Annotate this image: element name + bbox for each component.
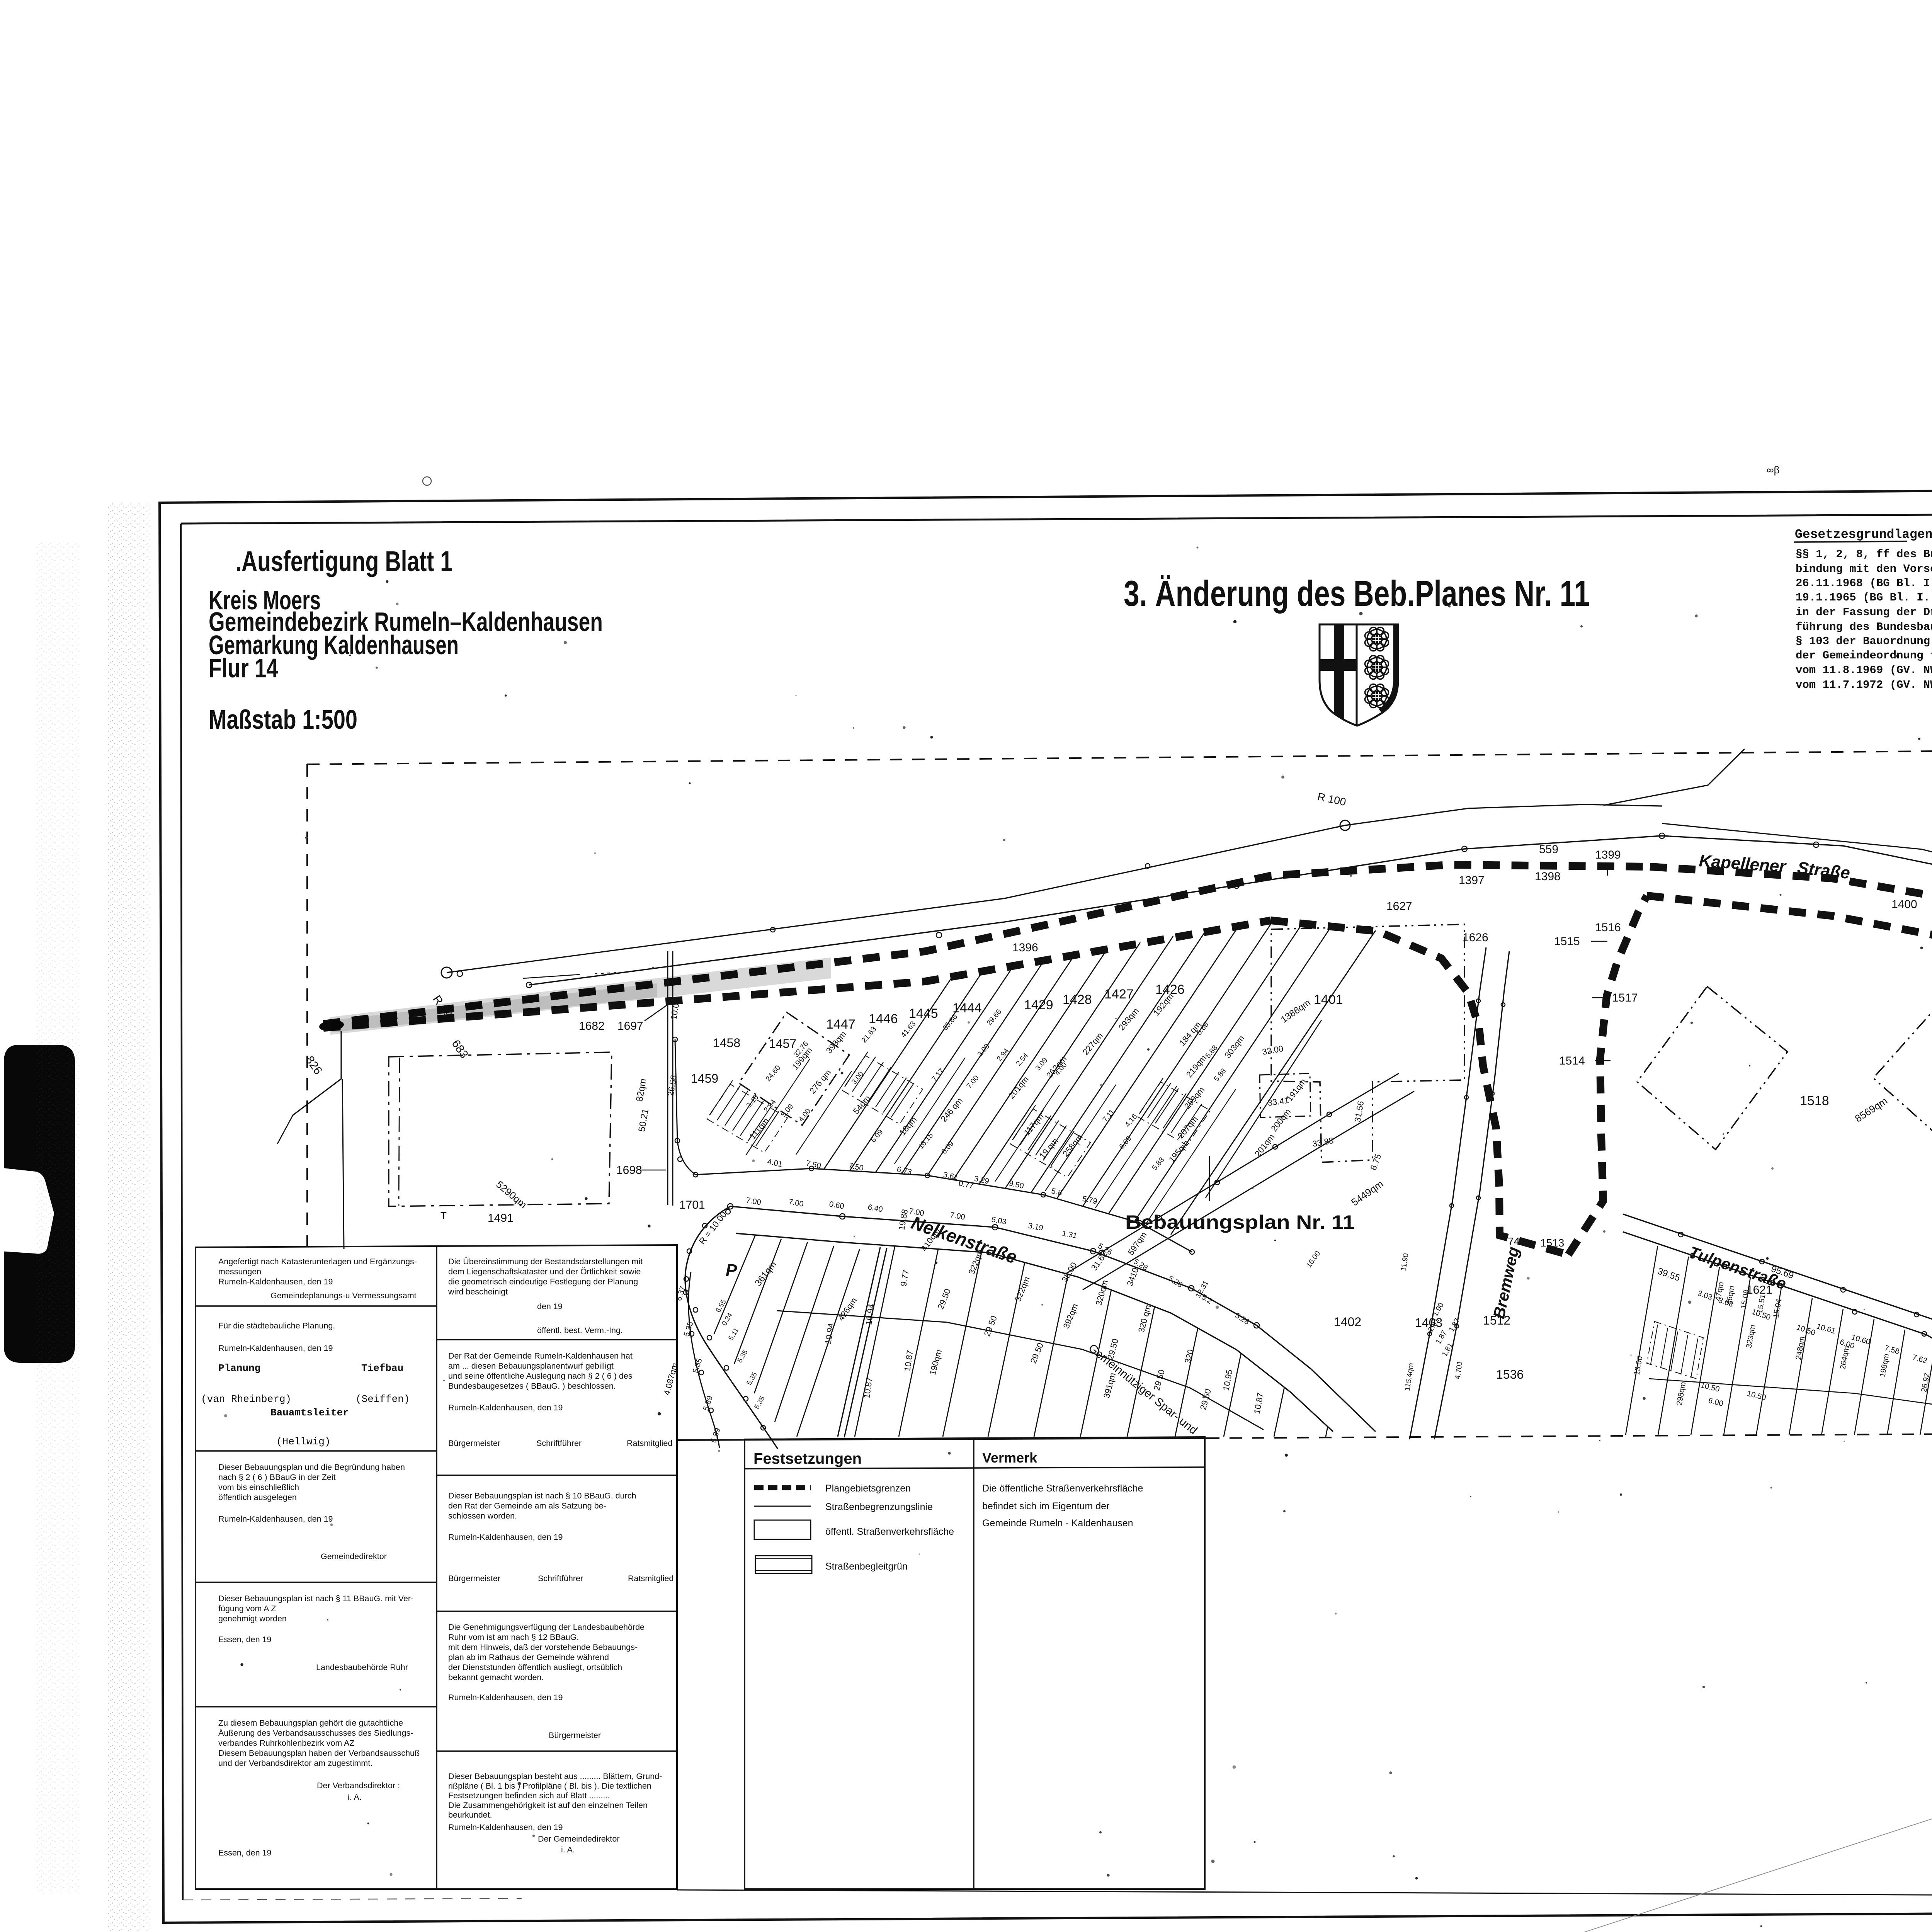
svg-text:Plangebietsgrenzen: Plangebietsgrenzen [825,1483,911,1494]
svg-text:1457: 1457 [769,1037,796,1051]
svg-text:bekannt gemacht worden.: bekannt gemacht worden. [448,1673,544,1682]
svg-text:vom 11.7.1972 (GV. NW. S. 218): vom 11.7.1972 (GV. NW. S. 218) [1796,679,1932,691]
svg-text:genehmigt worden: genehmigt worden [218,1614,287,1623]
svg-text:Zu diesem Bebauungsplan gehört: Zu diesem Bebauungsplan gehört die gutac… [218,1718,403,1728]
svg-text:Dieser Bebauungsplan ist nach: Dieser Bebauungsplan ist nach § 10 BBauG… [448,1491,636,1500]
svg-text:Bundesbaugesetzes ( BBauG. ) b: Bundesbaugesetzes ( BBauG. ) beschlossen… [448,1381,616,1391]
svg-text:(Seiffen): (Seiffen) [355,1393,410,1405]
svg-text:Diesem Bebauungsplan haben der: Diesem Bebauungsplan haben der Verbandsa… [218,1748,420,1758]
svg-text:Vermerk: Vermerk [982,1450,1037,1466]
svg-text:dem Liegenschaftskataster und: dem Liegenschaftskataster und der Örtlic… [448,1267,641,1276]
svg-text:Maßstab 1:500: Maßstab 1:500 [209,704,357,735]
svg-text:Rumeln-Kaldenhausen, den: Rumeln-Kaldenhausen, den 19 [218,1514,333,1524]
svg-text:mit dem Hinweis, daß der vorst: mit dem Hinweis, daß der vorstehende Beb… [448,1643,638,1652]
svg-text:und seine öffentliche Auslegun: und seine öffentliche Auslegung nach § 2… [448,1371,633,1381]
svg-text:Rumeln-Kaldenhausen, den: Rumeln-Kaldenhausen, den 19 [448,1693,563,1702]
svg-text:1401: 1401 [1314,992,1343,1007]
svg-text:1397: 1397 [1459,874,1485,887]
svg-text:1444: 1444 [952,1001,982,1015]
svg-text:schlossen worden.: schlossen worden. [448,1511,517,1520]
svg-text:den Rat der Gemeinde am: den Rat der Gemeinde am als Satzung be- [448,1501,606,1510]
svg-text:1398: 1398 [1535,870,1561,883]
svg-text:Tiefbau: Tiefbau [361,1362,403,1374]
svg-text:Festsetzungen: Festsetzungen [753,1450,862,1467]
svg-text:Die Genehmigungsverfügung der: Die Genehmigungsverfügung der Landesbaub… [448,1622,645,1632]
svg-text:beurkundet.: beurkundet. [448,1810,492,1820]
svg-text:Essen, den 19: Essen, den 19 [218,1848,271,1857]
svg-text:der Dienststunden öffentlich a: der Dienststunden öffentlich ausliegt, o… [448,1663,622,1672]
svg-text:1429: 1429 [1024,998,1053,1012]
svg-text:Ratsmitglied: Ratsmitglied [628,1574,673,1583]
svg-text:öffentl. Straßenverkehrsfläche: öffentl. Straßenverkehrsfläche [825,1526,954,1537]
svg-text:verbandes Ruhrkohlenbezirk vom: verbandes Ruhrkohlenbezirk vom AZ [218,1738,355,1748]
svg-text:plan ab im Rath: plan ab im Rathaus der Gemeinde während [448,1653,609,1662]
svg-text:Der Verbandsdirektor :: Der Verbandsdirektor : [317,1781,400,1790]
svg-text:§ 103 der Bauordnung NW. vom 2: § 103 der Bauordnung NW. vom 27.1.1970 (… [1796,635,1932,648]
svg-text:26.11.1968 (BG Bl. I. 1968 S.: 26.11.1968 (BG Bl. I. 1968 S. 1237/1969 … [1796,577,1932,590]
svg-text:öffentl. best. Verm.-Ing.: öffentl. best. Verm.-Ing. [537,1326,623,1335]
svg-text:1697: 1697 [617,1020,643,1032]
svg-text:Rumeln-Kaldenhausen, den: Rumeln-Kaldenhausen, den 19 [448,1403,563,1412]
svg-text:1627: 1627 [1386,900,1412,913]
svg-text:Flur 14: Flur 14 [209,653,278,683]
svg-text:(Hellwig): (Hellwig) [276,1436,330,1447]
svg-text:1536: 1536 [1496,1367,1524,1381]
svg-text:Rumeln-Kaldenhausen, den: Rumeln-Kaldenhausen, den 19 [448,1823,563,1832]
svg-text:Planung: Planung [218,1362,260,1374]
svg-text:1698: 1698 [616,1164,642,1177]
svg-text:Gemeindeplanungs-u Vermessung: Gemeindeplanungs-u Vermessungsamt [270,1291,417,1300]
svg-text:führung des Bundesbaugesetzes: führung des Bundesbaugesetzes vom 21.4.1… [1796,621,1932,633]
svg-text:1428: 1428 [1063,992,1092,1007]
svg-text:nach § 2 ( 6 ) BBauG in der Z: nach § 2 ( 6 ) BBauG in der Zeit [218,1473,336,1482]
svg-text:3. Änderung des Beb.Planes Nr.: 3. Änderung des Beb.Planes Nr. 11 [1124,573,1590,614]
svg-text:Straßenbegrenzungslinie: Straßenbegrenzungslinie [825,1502,933,1512]
svg-text:Bürgermeister: Bürgermeister [549,1731,601,1740]
svg-text:Ratsmitglied: Ratsmitglied [627,1439,672,1448]
svg-text:1515: 1515 [1554,935,1580,948]
svg-text:∞β: ∞β [1767,464,1780,476]
svg-text:Landesbaubehörde Ruhr: Landesbaubehörde Ruhr [316,1663,408,1672]
svg-text:Die Zusammengehörigkeit ist au: Die Zusammengehörigkeit ist auf den einz… [448,1801,648,1810]
svg-text:Dieser Bebauungsplan und die B: Dieser Bebauungsplan und die Begründung … [218,1463,405,1472]
svg-text:Gemeindedirektor: Gemeindedirektor [321,1552,387,1561]
svg-text:in der Fassung der Dritten Ver: in der Fassung der Dritten Verordnung zu… [1796,605,1932,619]
svg-text:vom bis eins: vom bis einschließlich [218,1483,299,1492]
svg-text:1459: 1459 [691,1071,718,1085]
svg-text:1446: 1446 [869,1012,898,1026]
svg-text:fügung vom A Z: fügung vom A Z [218,1604,276,1613]
svg-text:die geometrisch eindeutige Fes: die geometrisch eindeutige Festlegung de… [448,1277,638,1286]
svg-text:Der Gemeindedirektor: Der Gemeindedirektor [538,1834,620,1844]
svg-text:Bürgermeister: Bürgermeister [448,1574,500,1583]
svg-text:1513: 1513 [1540,1237,1564,1249]
svg-text:1514: 1514 [1559,1054,1585,1067]
svg-text:vom 11.8.1969 (GV. NW. S. 656): vom 11.8.1969 (GV. NW. S. 656) [1796,664,1932,677]
svg-text:i. A.: i. A. [561,1845,575,1854]
svg-text:1626: 1626 [1463,931,1488,944]
svg-text:1396: 1396 [1012,941,1038,954]
svg-text:und der Verbandsdirektor am: und der Verbandsdirektor am zugestimmt. [218,1759,372,1768]
svg-text:Bebauungsplan Nr. 11: Bebauungsplan Nr. 11 [1125,1211,1355,1233]
svg-text:i. A.: i. A. [348,1793,362,1802]
svg-text:Für die städtebauliche Planung: Für die städtebauliche Planung. [218,1321,335,1330]
svg-text:messungen: messungen [218,1267,261,1276]
svg-text:Dieser Bebauungsplan ist nach: Dieser Bebauungsplan ist nach § 11 BBauG… [218,1594,413,1603]
svg-text:Schriftführer: Schriftführer [536,1439,582,1448]
svg-text:Dieser Bebauungsplan besteht a: Dieser Bebauungsplan besteht aus .......… [448,1772,662,1781]
svg-text:1517: 1517 [1612,992,1638,1004]
svg-text:1400: 1400 [1891,898,1917,911]
svg-text:1491: 1491 [488,1212,514,1225]
svg-text:1399: 1399 [1595,849,1621,861]
svg-text:1701: 1701 [679,1199,705,1211]
svg-text:Rumeln-Kaldenhausen, den: Rumeln-Kaldenhausen, den 19 [218,1277,333,1286]
svg-text:Bürgermeister: Bürgermeister [448,1439,500,1448]
svg-text:744: 744 [1508,1235,1526,1247]
svg-text:befindet sich im Eigentum der: befindet sich im Eigentum der [982,1501,1109,1512]
svg-text:Essen, den 19: Essen, den 19 [218,1635,271,1644]
svg-text:bindung mit den Vorschriften d: bindung mit den Vorschriften der Baunutz… [1796,563,1932,575]
svg-text:rißpläne ( Bl. 1 bis ) Profi: rißpläne ( Bl. 1 bis ) Profilpläne ( Bl.… [448,1781,651,1791]
svg-text:Äußerung des Verbandsausschuss: Äußerung des Verbandsausschusses des Sie… [218,1728,413,1738]
svg-text:der Gemeindeordnung für das La: der Gemeindeordnung für das Land Nordrhe… [1796,649,1932,662]
svg-text:19.1.1965 (BG Bl. I. S. 21) §: 19.1.1965 (BG Bl. I. S. 21) § 4 der Erst… [1796,591,1932,604]
svg-text:Straßenbegleitgrün: Straßenbegleitgrün [825,1561,908,1572]
svg-text:Schriftführer: Schriftführer [538,1574,583,1583]
svg-text:1427: 1427 [1104,987,1134,1002]
svg-text:öffentlich ausgelegen: öffentlich ausgelegen [218,1493,297,1502]
svg-text:1516: 1516 [1595,921,1621,934]
svg-text:wird bescheinigt: wird bescheinigt [448,1287,508,1296]
svg-text:1512: 1512 [1483,1313,1510,1327]
svg-text:§§ 1, 2, 8, ff des Bundesbauge: §§ 1, 2, 8, ff des Bundesbaugesetzes vom… [1796,548,1932,561]
svg-text:559: 559 [1539,843,1558,856]
svg-text:Gesetzesgrundlagen:: Gesetzesgrundlagen: [1795,527,1932,542]
svg-text:Gemeinde Rumeln - Kaldenhausen: Gemeinde Rumeln - Kaldenhausen [982,1518,1133,1529]
svg-text:(van Rheinberg): (van Rheinberg) [201,1393,291,1405]
svg-text:Ruhr vom ist am: Ruhr vom ist am nach § 12 BBauG. [448,1633,579,1642]
svg-text:1682: 1682 [579,1020,605,1032]
svg-text:1445: 1445 [909,1006,938,1021]
svg-text:Die Übereinstimmung der Bestan: Die Übereinstimmung der Bestandsdarstell… [448,1257,643,1266]
svg-text:.Ausfertigung Blatt 1: .Ausfertigung Blatt 1 [235,545,452,577]
svg-text:Die öffentliche Straßenverkehr: Die öffentliche Straßenverkehrsfläche [982,1483,1143,1494]
svg-text:am ... diesen Bebauungspla: am ... diesen Bebauungsplanentwurf gebil… [448,1361,614,1371]
svg-text:Festsetzungen befinden sich au: Festsetzungen befinden sich auf Blatt ..… [448,1791,610,1800]
svg-text:Bauamtsleiter: Bauamtsleiter [270,1407,349,1418]
svg-text:1518: 1518 [1800,1094,1829,1108]
svg-text:P: P [726,1261,737,1280]
svg-text:1402: 1402 [1334,1315,1361,1329]
svg-text:Rumeln-Kaldenhausen, den: Rumeln-Kaldenhausen, den 19 [448,1532,563,1542]
svg-text:1458: 1458 [713,1036,740,1050]
svg-text:T: T [440,1210,447,1221]
svg-text:den 19: den 19 [537,1302,563,1311]
svg-text:Angefertigt nach Katasterunter: Angefertigt nach Katasterunterlagen und … [218,1257,417,1266]
svg-text:Rumeln-Kaldenhausen, den: Rumeln-Kaldenhausen, den 19 [218,1344,333,1353]
svg-text:Der Rat der Gemeinde Rumeln-Ka: Der Rat der Gemeinde Rumeln-Kaldenhausen… [448,1351,633,1361]
